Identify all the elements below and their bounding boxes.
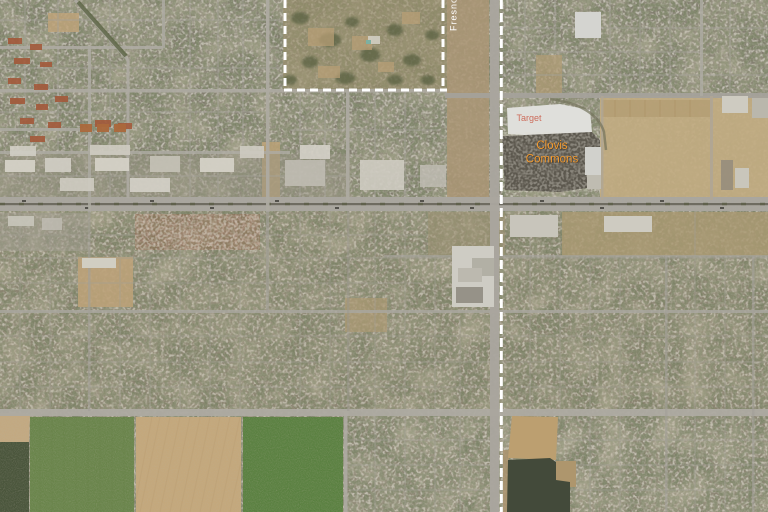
svg-text:Commons: Commons [526,154,579,166]
svg-text:Target: Target [516,113,542,123]
svg-text:Clovis: Clovis [536,140,568,152]
svg-text:Fresno: Fresno [449,0,459,31]
